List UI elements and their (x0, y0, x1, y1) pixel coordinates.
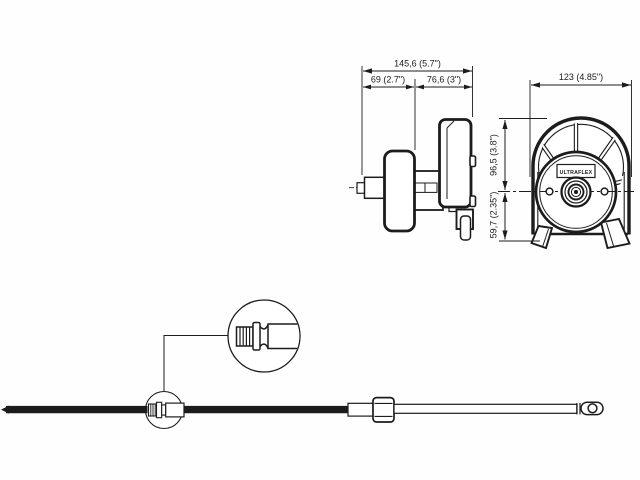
hex-nut (373, 398, 394, 422)
steering-shaft-sleeve (365, 177, 387, 198)
left-mount-hole (546, 188, 553, 195)
dim-width-label: 123 (4.85") (559, 72, 603, 82)
helm-bell-housing (385, 151, 415, 231)
right-mount-hole (601, 188, 608, 195)
output-rod (394, 404, 577, 413)
detail-leader-line (164, 336, 229, 392)
brand-label: ULTRAFLEX (560, 170, 593, 176)
steering-system-technical-drawing: 145,6 (5.7") 69 (2.7") 76,6 (3") (0, 0, 640, 480)
steering-shaft-hub (562, 178, 591, 207)
mounting-plate (440, 120, 476, 212)
connector-detail-magnified (237, 323, 303, 351)
cable-end-sleeve (348, 403, 375, 416)
dim-right-width-label: 76,6 (3") (427, 75, 461, 85)
cable-outlet-fitting (457, 210, 474, 241)
front-view-helm (498, 80, 640, 248)
diagram-canvas: 145,6 (5.7") 69 (2.7") 76,6 (3") (0, 0, 640, 480)
dim-lower-height-label: 59,7 (2.35") (489, 192, 499, 239)
side-view-helm (349, 66, 476, 240)
dim-total-width-label: 145,6 (5.7") (394, 59, 441, 69)
rod-eye-end (581, 402, 603, 414)
dim-upper-height-label: 96,5 (3.8") (489, 134, 499, 176)
dim-left-width-label: 69 (2.7") (371, 75, 405, 85)
cable-connector (149, 402, 185, 417)
steering-cable-assembly (1, 300, 603, 429)
